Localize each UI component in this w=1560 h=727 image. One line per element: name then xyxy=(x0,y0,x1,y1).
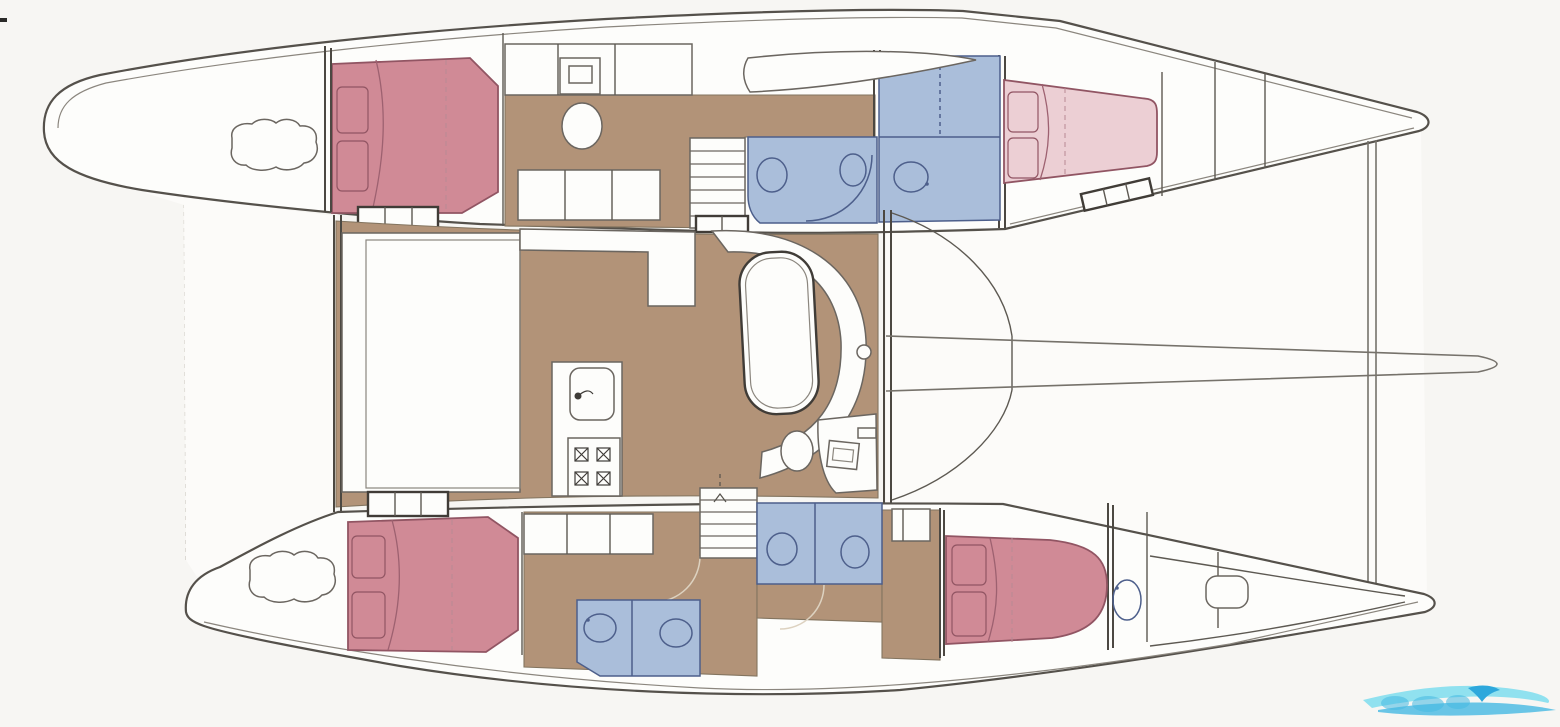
pillow xyxy=(952,545,986,585)
vanity-seat xyxy=(562,103,602,149)
hatch-block-top-right xyxy=(696,216,748,232)
foredeck-platform xyxy=(142,192,336,577)
stool xyxy=(781,431,813,471)
pillow xyxy=(352,536,385,578)
basin-tap-dot xyxy=(925,182,929,186)
basin-tap-dot xyxy=(586,618,590,622)
tv-screen-icon xyxy=(569,66,592,83)
screen-outer xyxy=(827,441,860,470)
nav-keyboard xyxy=(858,428,876,438)
dinette-table xyxy=(738,250,820,416)
pillow xyxy=(337,141,368,191)
forward-cabin-top-bed xyxy=(332,58,498,213)
basin-tap-dot xyxy=(1115,586,1119,590)
bathroom-aft-bottom xyxy=(757,503,882,584)
nav-station xyxy=(818,414,877,493)
nav-screen xyxy=(827,441,860,470)
watermark-wave-logo xyxy=(1363,686,1556,716)
pillow xyxy=(1008,138,1038,178)
forward-cabin-bottom-bed xyxy=(348,517,518,652)
galley xyxy=(552,362,622,496)
bathroom-basin-room xyxy=(879,56,1000,222)
oval-table xyxy=(738,250,820,416)
windlass-top xyxy=(231,119,317,170)
bridgedeck-saloon xyxy=(334,210,891,512)
pillow xyxy=(1008,92,1038,132)
aft-cabin-bottom-bed xyxy=(946,536,1107,644)
table-leg-icon xyxy=(857,345,871,359)
deck-plan-image xyxy=(0,0,1560,727)
bathroom-forward-bottom xyxy=(577,600,700,676)
saloon-seating-platform xyxy=(342,233,520,492)
deck-locker xyxy=(892,509,930,541)
scan-speck xyxy=(0,18,7,22)
pillow xyxy=(337,87,368,133)
lower-cabinets xyxy=(518,170,660,220)
pillow xyxy=(352,592,385,638)
step-block xyxy=(368,492,448,516)
stern-hatch xyxy=(1206,576,1248,608)
pillow xyxy=(952,592,986,636)
step-block-bottom-left xyxy=(368,492,448,516)
windlass-bottom xyxy=(249,551,335,602)
corridor-lockers-bottom xyxy=(524,514,653,554)
bathroom-shower-wc xyxy=(748,137,877,223)
galley-stove xyxy=(568,438,620,496)
deck-plan-svg xyxy=(0,0,1560,727)
